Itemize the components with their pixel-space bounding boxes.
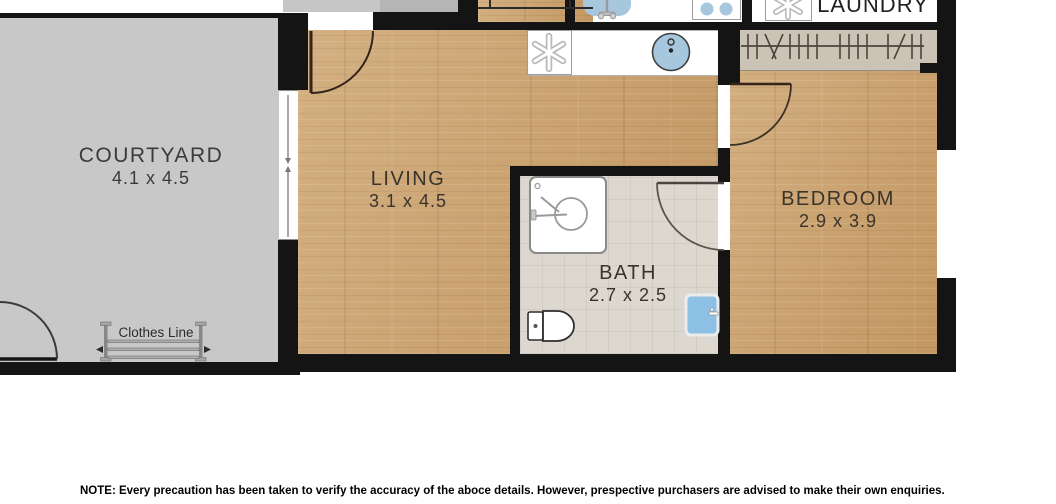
robe-floor [735,30,937,71]
wall-robe-right-stub [920,63,937,73]
bedroom-label: BEDROOM 2.9 x 3.9 [738,188,938,232]
wall-bath-left [510,176,520,354]
bedroom-window [937,150,956,278]
room-name: BATH [528,262,728,284]
bedroom-door-opening [718,85,730,148]
room-dims: 4.1 x 4.5 [51,167,251,189]
bath-door-opening [718,182,730,250]
room-name: LIVING [308,168,508,190]
sliding-door [279,90,298,240]
wall-kitchen-laundry-divider [742,0,752,25]
wall-top-mid [565,22,956,30]
robe-front-line [737,70,922,71]
room-name: BEDROOM [738,188,938,210]
wall-stairs-left [458,0,478,30]
wall-courtyard-top [0,13,285,18]
room-dims: 3.1 x 4.5 [308,190,508,212]
cooktop [692,0,741,20]
floor-plan: COURTYARD 4.1 x 4.5 LIVING 3.1 x 4.5 BAT… [0,0,1056,504]
wall-mid-vertical-top [718,30,740,85]
stairs-floor [478,0,593,22]
wall-bottom-courtyard [0,362,300,375]
wall-left-upper-block [278,13,308,90]
room-dims: 2.9 x 3.9 [738,210,938,232]
dishwasher [527,30,572,75]
wall-bottom-unit [283,354,956,372]
laundry-tub [583,0,631,16]
clothes-line-label: Clothes Line [100,325,212,340]
wall-mid-between-doors [718,148,730,182]
living-label: LIVING 3.1 x 4.5 [308,168,508,212]
entry-porch-dark [380,0,462,12]
wall-left-lower [278,240,298,362]
bath-label: BATH 2.7 x 2.5 [528,262,728,306]
courtyard-floor [0,17,283,363]
laundry-label: LAUNDRY [790,0,956,18]
wall-bath-top [510,166,730,176]
wall-right-upper [937,0,956,150]
room-dims: 2.7 x 2.5 [528,284,728,306]
entry-door-opening [308,12,373,30]
disclaimer-note: NOTE: Every precaution has been taken to… [80,485,945,497]
courtyard-label: COURTYARD 4.1 x 4.5 [51,145,251,189]
room-name: COURTYARD [51,145,251,167]
wall-stairs-kitchen-divider [565,0,575,25]
